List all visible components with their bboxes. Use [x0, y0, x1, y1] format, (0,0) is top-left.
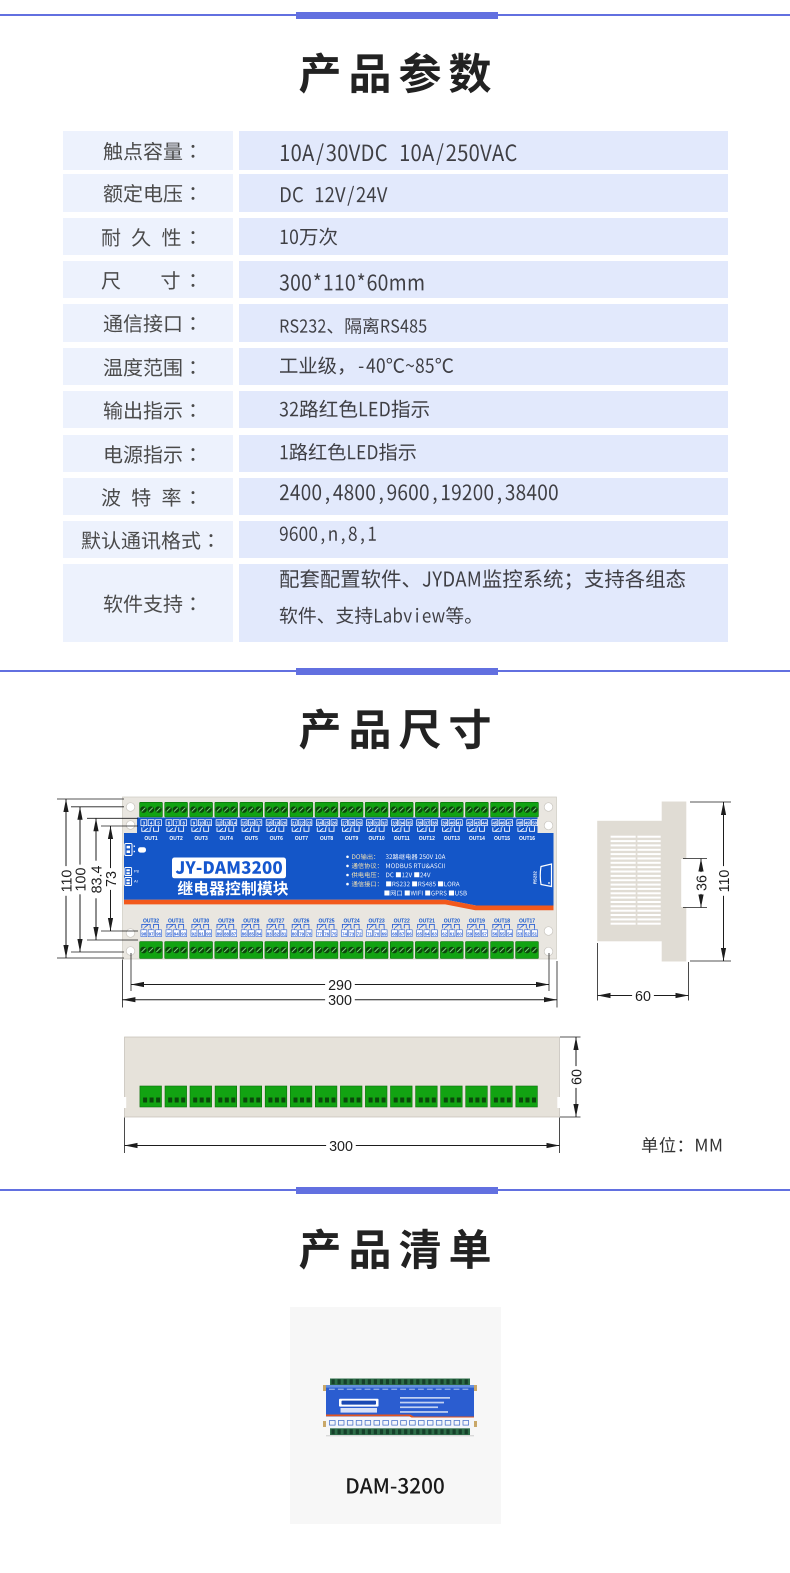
- svg-text:OUT21: OUT21: [419, 918, 435, 924]
- svg-text:49: 49: [525, 821, 530, 826]
- svg-text:OUT10: OUT10: [369, 836, 385, 842]
- svg-text:OUT20: OUT20: [444, 918, 460, 924]
- svg-text:71: 71: [367, 932, 372, 937]
- svg-text:OUT28: OUT28: [243, 918, 259, 924]
- svg-text:60: 60: [457, 932, 462, 937]
- svg-text:OUT18: OUT18: [494, 918, 510, 924]
- svg-text:24: 24: [317, 821, 322, 826]
- svg-text:36: 36: [694, 875, 710, 891]
- svg-text:59: 59: [467, 932, 472, 937]
- svg-text:37: 37: [425, 821, 430, 826]
- svg-text:OUT17: OUT17: [519, 918, 535, 924]
- svg-text:38: 38: [432, 821, 437, 826]
- svg-text:46: 46: [500, 821, 505, 826]
- svg-text:67: 67: [400, 932, 405, 937]
- svg-text:83: 83: [267, 932, 272, 937]
- svg-text:300: 300: [329, 1139, 353, 1155]
- svg-text:54: 54: [507, 932, 512, 937]
- svg-text:44: 44: [482, 821, 487, 826]
- svg-text:52: 52: [525, 932, 530, 937]
- svg-text:11: 11: [206, 821, 211, 826]
- svg-text:80: 80: [292, 932, 297, 937]
- svg-text:55: 55: [500, 932, 505, 937]
- svg-text:OUT3: OUT3: [194, 836, 208, 842]
- svg-text:39: 39: [442, 821, 447, 826]
- svg-text:74: 74: [342, 932, 347, 937]
- svg-text:72: 72: [357, 932, 362, 937]
- svg-text:62: 62: [442, 932, 447, 937]
- svg-text:76: 76: [324, 932, 329, 937]
- svg-text:79: 79: [299, 932, 304, 937]
- svg-text:48: 48: [518, 821, 523, 826]
- svg-text:OUT1: OUT1: [144, 836, 158, 842]
- svg-text:81: 81: [282, 932, 287, 937]
- svg-text:OUT29: OUT29: [218, 918, 234, 924]
- svg-text:OUT16: OUT16: [519, 836, 535, 842]
- svg-text:63: 63: [432, 932, 437, 937]
- svg-text:91: 91: [199, 932, 204, 937]
- svg-text:18: 18: [267, 821, 272, 826]
- svg-text:73: 73: [104, 871, 120, 887]
- svg-text:64: 64: [425, 932, 430, 937]
- svg-text:60: 60: [635, 989, 651, 1005]
- svg-text:13: 13: [224, 821, 229, 826]
- svg-text:42: 42: [467, 821, 472, 826]
- svg-text:19: 19: [274, 821, 279, 826]
- svg-text:89: 89: [217, 932, 222, 937]
- svg-text:53: 53: [518, 932, 523, 937]
- svg-text:100: 100: [73, 868, 89, 892]
- svg-text:73: 73: [349, 932, 354, 937]
- svg-text:90: 90: [206, 932, 211, 937]
- svg-text:OUT30: OUT30: [193, 918, 209, 924]
- svg-text:RS232: RS232: [533, 871, 538, 884]
- svg-text:58: 58: [475, 932, 480, 937]
- svg-text:OUT22: OUT22: [394, 918, 410, 924]
- svg-text:31: 31: [375, 821, 380, 826]
- svg-text:32: 32: [382, 821, 387, 826]
- svg-text:OUT13: OUT13: [444, 836, 460, 842]
- svg-text:20: 20: [282, 821, 287, 826]
- svg-text:47: 47: [507, 821, 512, 826]
- svg-text:26: 26: [332, 821, 337, 826]
- svg-text:OUT32: OUT32: [143, 918, 159, 924]
- svg-text:33: 33: [392, 821, 397, 826]
- svg-text:OUT12: OUT12: [419, 836, 435, 842]
- svg-text:OUT24: OUT24: [344, 918, 360, 924]
- svg-text:28: 28: [349, 821, 354, 826]
- svg-text:25: 25: [324, 821, 329, 826]
- svg-text:OUT19: OUT19: [469, 918, 485, 924]
- svg-text:17: 17: [257, 821, 262, 826]
- svg-text:70: 70: [375, 932, 380, 937]
- svg-text:94: 94: [174, 932, 179, 937]
- svg-text:15: 15: [242, 821, 247, 826]
- svg-text:OUT25: OUT25: [318, 918, 334, 924]
- svg-text:41: 41: [457, 821, 462, 826]
- svg-text:OUT26: OUT26: [293, 918, 309, 924]
- svg-text:14: 14: [231, 821, 236, 826]
- svg-text:84: 84: [257, 932, 262, 937]
- svg-text:69: 69: [382, 932, 387, 937]
- svg-text:300: 300: [328, 993, 352, 1009]
- svg-text:OUT23: OUT23: [369, 918, 385, 924]
- svg-text:75: 75: [332, 932, 337, 937]
- svg-text:OUT2: OUT2: [169, 836, 183, 842]
- svg-text:OUT15: OUT15: [494, 836, 510, 842]
- svg-text:65: 65: [417, 932, 422, 937]
- svg-text:21: 21: [292, 821, 297, 826]
- svg-text:92: 92: [192, 932, 197, 937]
- svg-text:50: 50: [532, 821, 537, 826]
- svg-text:85: 85: [249, 932, 254, 937]
- svg-text:34: 34: [400, 821, 405, 826]
- svg-text:OUT6: OUT6: [270, 836, 284, 842]
- svg-text:10: 10: [199, 821, 204, 826]
- svg-text:57: 57: [482, 932, 487, 937]
- svg-text:98: 98: [142, 932, 147, 937]
- svg-text:290: 290: [328, 978, 352, 994]
- svg-text:OUT27: OUT27: [268, 918, 284, 924]
- svg-text:OUT7: OUT7: [295, 836, 309, 842]
- svg-text:P8: P8: [134, 869, 140, 874]
- svg-text:22: 22: [299, 821, 304, 826]
- svg-text:95: 95: [167, 932, 172, 937]
- svg-text:16: 16: [249, 821, 254, 826]
- svg-text:OUT4: OUT4: [220, 836, 234, 842]
- svg-text:OUT5: OUT5: [245, 836, 259, 842]
- svg-text:12: 12: [217, 821, 222, 826]
- svg-text:93: 93: [181, 932, 186, 937]
- svg-text:97: 97: [149, 932, 154, 937]
- svg-text:66: 66: [407, 932, 412, 937]
- svg-text:60: 60: [569, 1069, 585, 1085]
- svg-text:77: 77: [317, 932, 322, 937]
- svg-text:30: 30: [367, 821, 372, 826]
- svg-text:78: 78: [307, 932, 312, 937]
- svg-text:AI: AI: [134, 879, 138, 884]
- svg-text:61: 61: [450, 932, 455, 937]
- svg-text:OUT14: OUT14: [469, 836, 485, 842]
- svg-text:23: 23: [307, 821, 312, 826]
- svg-text:96: 96: [156, 932, 161, 937]
- svg-text:110: 110: [717, 870, 733, 893]
- svg-text:OUT11: OUT11: [394, 836, 410, 842]
- svg-text:43: 43: [475, 821, 480, 826]
- svg-text:29: 29: [357, 821, 362, 826]
- svg-text:OUT9: OUT9: [345, 836, 359, 842]
- svg-text:45: 45: [493, 821, 498, 826]
- svg-text:OUT31: OUT31: [168, 918, 184, 924]
- svg-text:40: 40: [450, 821, 455, 826]
- svg-text:56: 56: [493, 932, 498, 937]
- svg-text:51: 51: [532, 932, 537, 937]
- svg-text:27: 27: [342, 821, 347, 826]
- svg-text:86: 86: [242, 932, 247, 937]
- svg-text:87: 87: [231, 932, 236, 937]
- svg-text:68: 68: [392, 932, 397, 937]
- svg-text:88: 88: [224, 932, 229, 937]
- svg-text:82: 82: [274, 932, 279, 937]
- svg-text:OUT8: OUT8: [320, 836, 334, 842]
- svg-text:35: 35: [407, 821, 412, 826]
- svg-text:36: 36: [417, 821, 422, 826]
